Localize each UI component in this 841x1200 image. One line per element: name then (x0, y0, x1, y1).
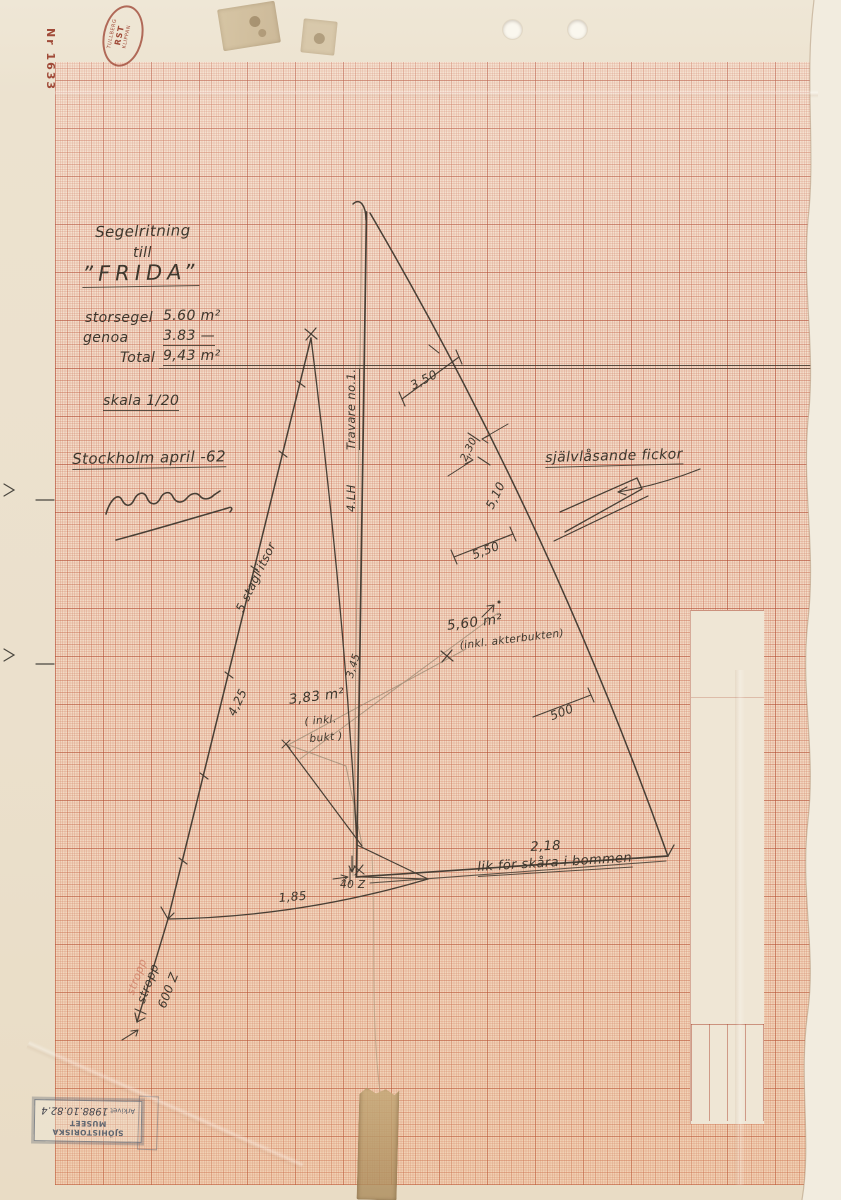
archive-label: Arkivet (110, 1106, 135, 1114)
tape-hole-mark (249, 15, 262, 28)
pockets-note: självlåsande fickor (545, 446, 683, 468)
tape-hole-mark (258, 28, 267, 37)
archive-line: Arkivet 1988.10.82.4 (35, 1104, 141, 1117)
genoa-row-label: genoa (83, 330, 129, 346)
mast-lower-note: 4.LH (344, 484, 358, 512)
sheet-number-stamp: Nr 1633 (44, 28, 57, 91)
museum-archive-stamp: SJÖHISTORISKA MUSEET Arkivet 1988.10.82.… (34, 1099, 143, 1143)
mainsail-row-value: 5.60 m² (163, 308, 221, 324)
scale-note: skala 1/20 (103, 393, 179, 411)
scanned-sail-drawing: Segelritning till ”FRIDA” storsegel 5.60… (0, 0, 841, 1200)
archive-number: 1988.10.82.4 (41, 1104, 108, 1116)
punch-hole-left (503, 20, 522, 39)
tape-top-right (300, 18, 337, 55)
stamp-fragment (137, 1096, 159, 1151)
museum-name: SJÖHISTORISKA MUSEET (35, 1118, 141, 1138)
torn-paper-edge (792, 0, 841, 1200)
mainsail-row-label: storsegel (85, 310, 153, 326)
punch-hole-right (568, 20, 587, 39)
place-date: Stockholm april -62 (72, 447, 226, 470)
boat-name: ”FRIDA” (82, 260, 200, 288)
tack-dim: 40 Z (340, 879, 366, 891)
total-row-label: Total (120, 350, 155, 366)
drawing-title-line2: till (133, 245, 152, 261)
genoa-foot-length: 1,85 (278, 889, 307, 905)
drawing-title-line1: Segelritning (95, 221, 191, 241)
mast-track-note: Travare no.1. (344, 369, 360, 450)
tape-top-left (217, 1, 281, 52)
tape-bottom (357, 1087, 400, 1200)
total-row-value: 9,43 m² (163, 348, 841, 366)
boom-dim: 2,18 (530, 838, 561, 855)
pencil-drawing (0, 0, 841, 1200)
tape-hole-mark (313, 32, 325, 44)
genoa-row-value: 3.83 — (163, 328, 215, 346)
